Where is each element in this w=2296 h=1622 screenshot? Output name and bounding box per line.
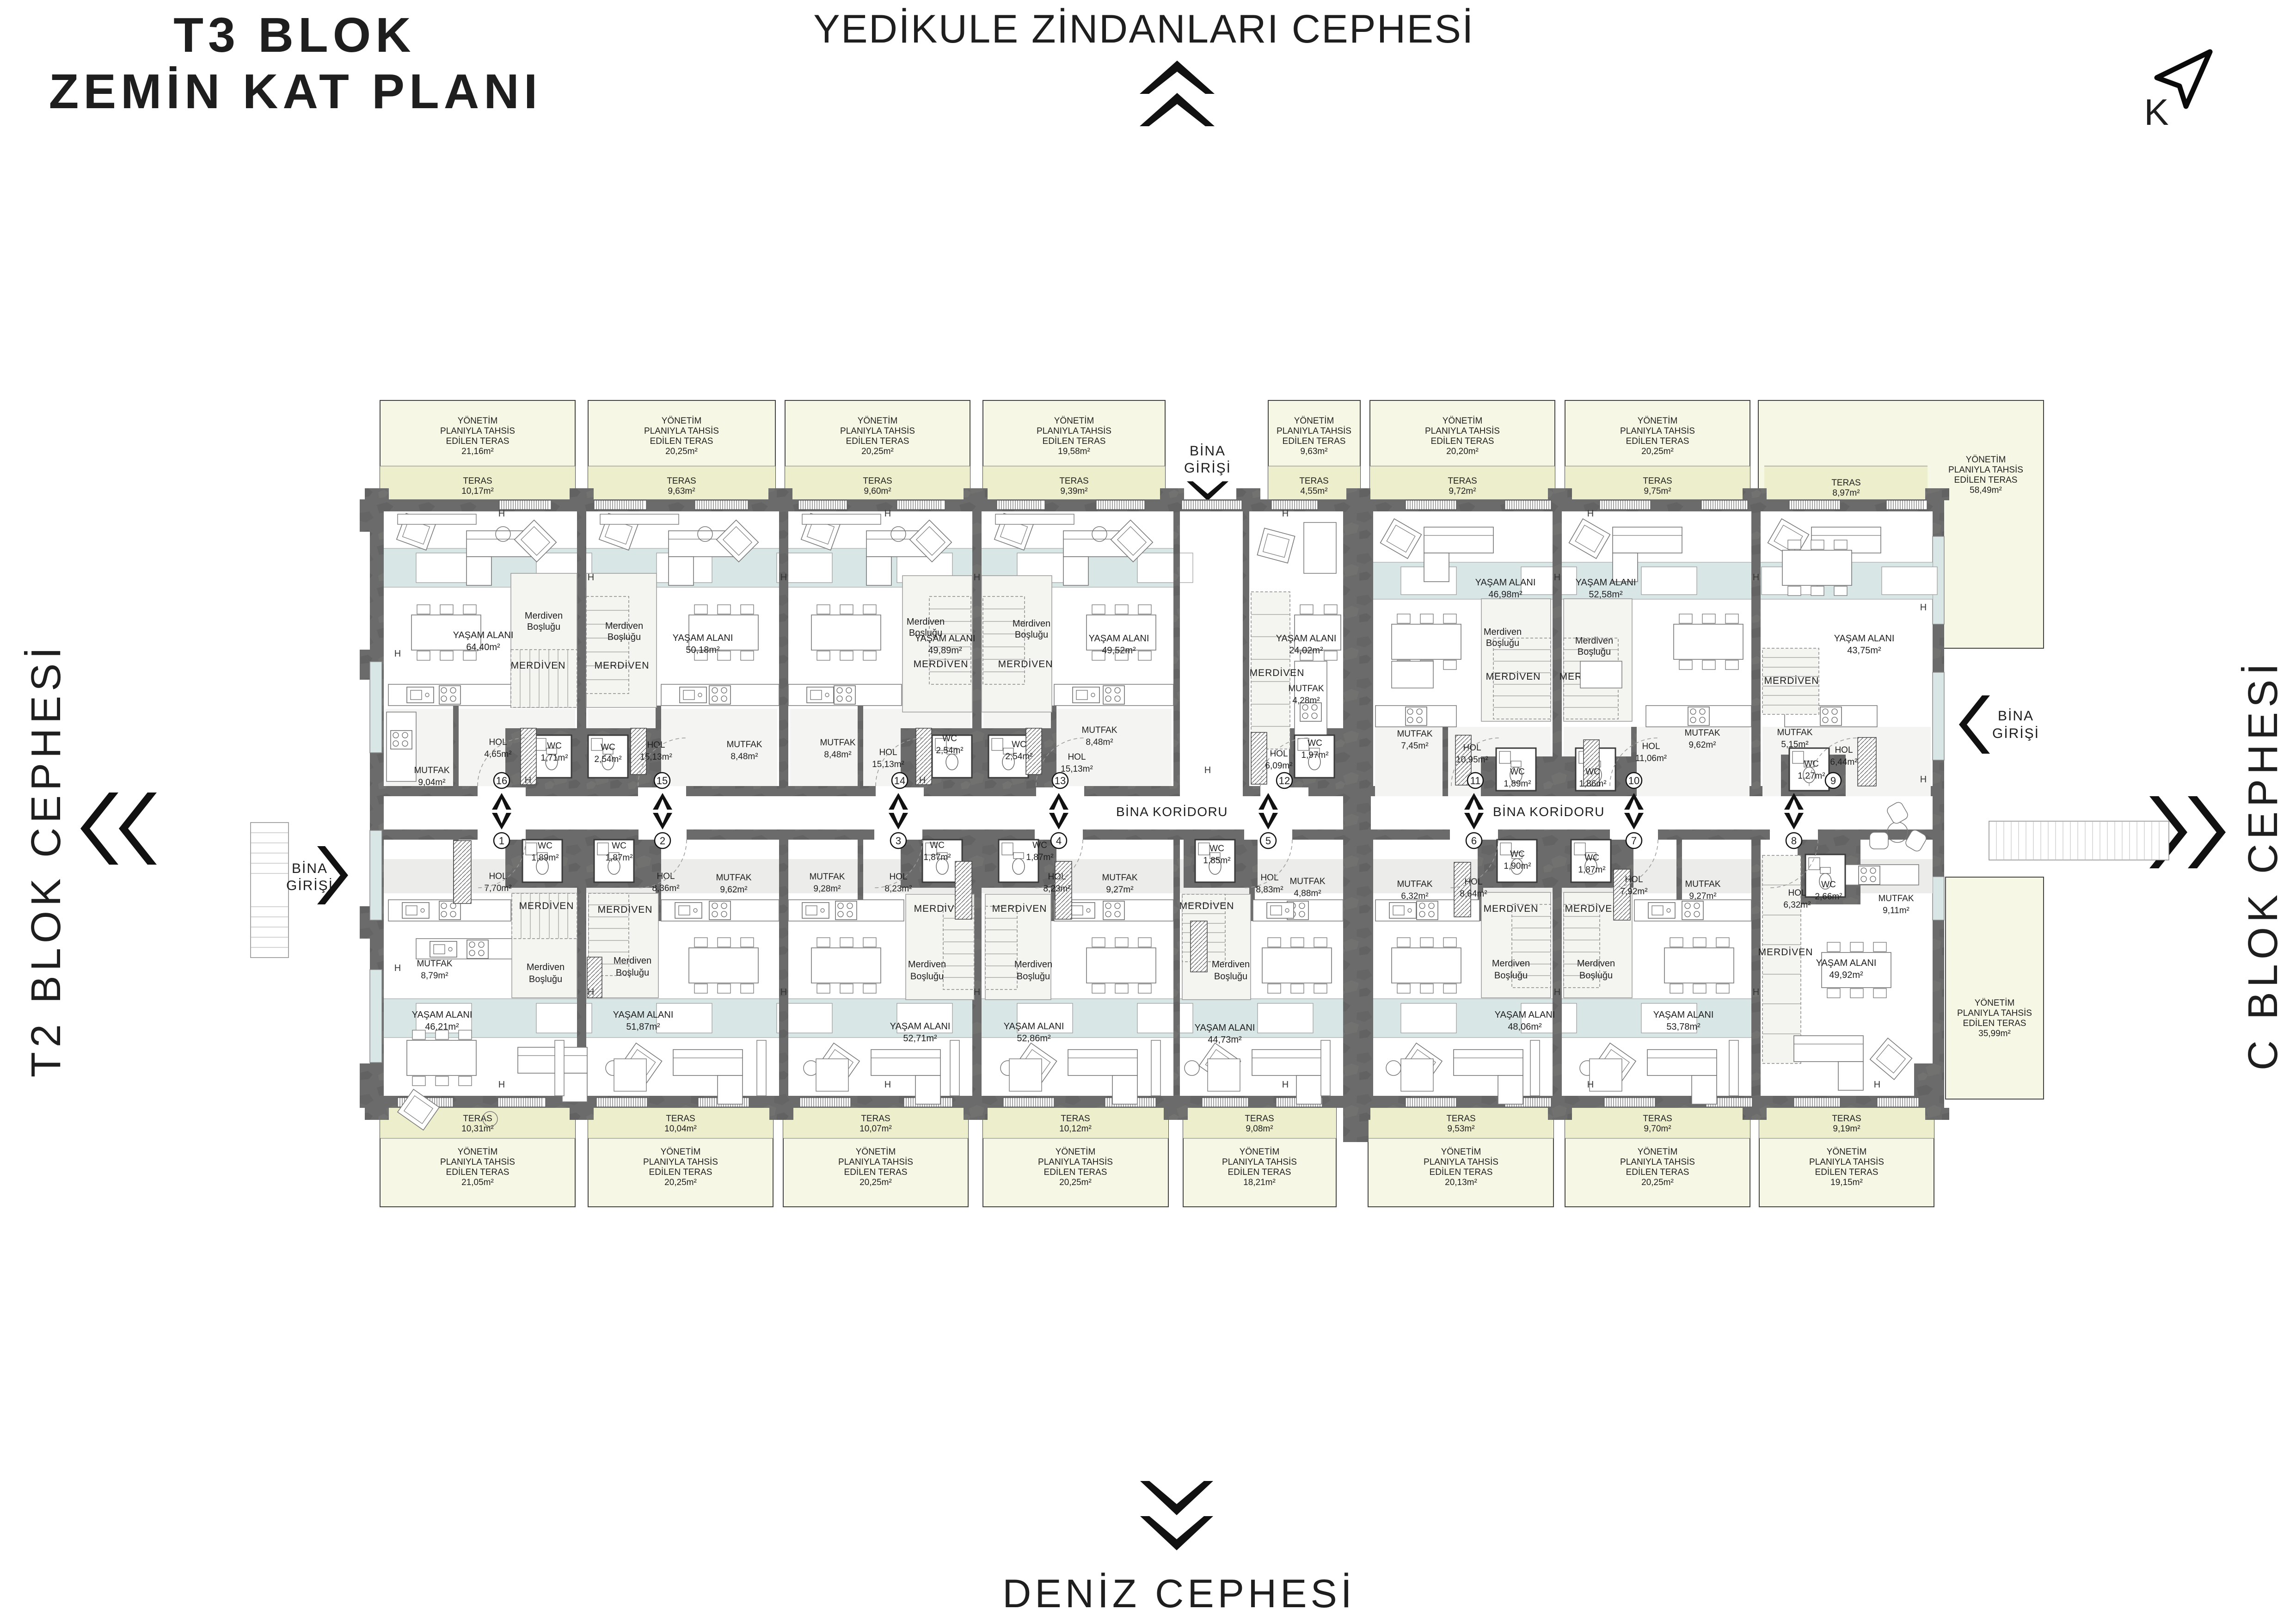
- svg-text:GİRİŞİ: GİRİŞİ: [286, 878, 333, 893]
- svg-text:H: H: [1204, 765, 1211, 775]
- svg-text:19,15m²: 19,15m²: [1830, 1178, 1863, 1187]
- svg-text:Boşluğu: Boşluğu: [1494, 971, 1528, 981]
- svg-text:Merdiven: Merdiven: [1013, 619, 1050, 629]
- svg-text:YAŞAM ALANI: YAŞAM ALANI: [1653, 1010, 1714, 1020]
- svg-text:5,15m²: 5,15m²: [1781, 740, 1808, 750]
- svg-text:HOL: HOL: [1048, 872, 1066, 882]
- svg-text:Merdiven: Merdiven: [527, 962, 565, 972]
- svg-text:4,65m²: 4,65m²: [484, 750, 511, 759]
- svg-text:PLANIYLA TAHSİS: PLANIYLA TAHSİS: [440, 426, 515, 436]
- svg-text:YAŞAM ALANI: YAŞAM ALANI: [890, 1021, 951, 1032]
- svg-text:TERAS: TERAS: [1061, 1114, 1090, 1124]
- svg-text:Merdiven: Merdiven: [1577, 958, 1615, 969]
- svg-text:WC: WC: [547, 741, 562, 751]
- svg-text:YAŞAM ALANI: YAŞAM ALANI: [453, 630, 514, 640]
- svg-text:19,58m²: 19,58m²: [1058, 447, 1090, 456]
- svg-text:YAŞAM ALANI: YAŞAM ALANI: [1576, 578, 1636, 588]
- svg-text:TERAS: TERAS: [1245, 1114, 1274, 1124]
- svg-text:24,02m²: 24,02m²: [1289, 645, 1323, 656]
- svg-text:GİRİŞİ: GİRİŞİ: [1992, 726, 2039, 741]
- svg-text:8,79m²: 8,79m²: [421, 971, 448, 981]
- svg-text:DENİZ CEPHESİ: DENİZ CEPHESİ: [1002, 1572, 1355, 1616]
- svg-text:8,36m²: 8,36m²: [652, 884, 679, 893]
- svg-text:YÖNETİM: YÖNETİM: [1443, 416, 1483, 426]
- svg-text:14: 14: [894, 775, 905, 786]
- svg-text:7: 7: [1631, 835, 1637, 847]
- svg-text:10,31m²: 10,31m²: [461, 1124, 494, 1134]
- svg-text:YÖNETİM: YÖNETİM: [1056, 1147, 1096, 1157]
- svg-text:H: H: [588, 987, 594, 997]
- svg-text:YAŞAM ALANI: YAŞAM ALANI: [673, 633, 733, 643]
- svg-text:YÖNETİM: YÖNETİM: [1827, 1147, 1867, 1157]
- svg-text:YÖNETİM: YÖNETİM: [662, 416, 702, 426]
- svg-text:TERAS: TERAS: [1446, 1114, 1475, 1124]
- svg-text:HOL: HOL: [1788, 888, 1806, 898]
- svg-text:6: 6: [1471, 835, 1477, 847]
- svg-text:Boşluğu: Boşluğu: [1214, 971, 1247, 982]
- svg-text:Boşluğu: Boşluğu: [529, 974, 562, 984]
- svg-text:C BLOK CEPHESİ: C BLOK CEPHESİ: [2240, 659, 2286, 1070]
- svg-text:HOL: HOL: [1260, 873, 1278, 883]
- svg-text:8,97m²: 8,97m²: [1832, 488, 1860, 498]
- svg-text:Merdiven: Merdiven: [605, 621, 643, 631]
- svg-text:YAŞAM ALANI: YAŞAM ALANI: [1834, 633, 1895, 644]
- svg-text:MUTFAK: MUTFAK: [414, 766, 449, 775]
- svg-text:TERAS: TERAS: [1831, 478, 1860, 488]
- svg-text:3: 3: [896, 835, 901, 847]
- svg-text:Merdiven: Merdiven: [1484, 627, 1522, 637]
- svg-text:9,70m²: 9,70m²: [1644, 1124, 1671, 1134]
- svg-text:15: 15: [657, 775, 668, 786]
- svg-text:1,97m²: 1,97m²: [1301, 750, 1328, 760]
- svg-text:20,20m²: 20,20m²: [1446, 447, 1479, 456]
- svg-text:58,49m²: 58,49m²: [1970, 485, 2002, 495]
- svg-text:YAŞAM ALANI: YAŞAM ALANI: [1089, 633, 1149, 644]
- svg-text:EDİLEN TERAS: EDİLEN TERAS: [1431, 436, 1494, 446]
- svg-text:WC: WC: [930, 841, 945, 850]
- svg-text:BİNA: BİNA: [292, 861, 328, 876]
- svg-text:WC: WC: [1012, 740, 1026, 750]
- svg-text:9,04m²: 9,04m²: [418, 778, 445, 787]
- svg-text:YAŞAM ALANI: YAŞAM ALANI: [412, 1010, 473, 1020]
- svg-text:46,98m²: 46,98m²: [1488, 590, 1522, 600]
- svg-text:Boşluğu: Boşluğu: [910, 971, 944, 982]
- svg-text:MUTFAK: MUTFAK: [1081, 725, 1117, 735]
- svg-text:4,55m²: 4,55m²: [1300, 486, 1327, 496]
- svg-text:YAŞAM ALANI: YAŞAM ALANI: [1495, 1010, 1555, 1020]
- svg-text:BİNA: BİNA: [1998, 708, 2034, 724]
- svg-text:21,16m²: 21,16m²: [461, 447, 494, 456]
- svg-text:MERDİVEN: MERDİVEN: [519, 901, 574, 911]
- svg-text:10,07m²: 10,07m²: [859, 1124, 892, 1134]
- svg-text:H: H: [1554, 572, 1560, 583]
- svg-text:6,32m²: 6,32m²: [1401, 891, 1428, 901]
- svg-text:53,78m²: 53,78m²: [1666, 1022, 1701, 1032]
- svg-text:7,45m²: 7,45m²: [1401, 741, 1428, 751]
- svg-text:PLANIYLA TAHSİS: PLANIYLA TAHSİS: [1222, 1157, 1297, 1167]
- svg-text:H: H: [780, 987, 787, 997]
- svg-text:10,17m²: 10,17m²: [461, 486, 494, 496]
- svg-text:9,75m²: 9,75m²: [1644, 486, 1671, 496]
- svg-text:9,60m²: 9,60m²: [864, 486, 891, 496]
- svg-text:H: H: [1753, 987, 1759, 997]
- svg-text:Merdiven: Merdiven: [1014, 959, 1052, 970]
- svg-text:EDİLEN TERAS: EDİLEN TERAS: [1954, 475, 2018, 485]
- svg-text:YAŞAM ALANI: YAŞAM ALANI: [1276, 633, 1337, 644]
- svg-text:EDİLEN TERAS: EDİLEN TERAS: [1044, 1167, 1107, 1177]
- svg-text:EDİLEN TERAS: EDİLEN TERAS: [446, 1167, 510, 1177]
- svg-text:MERDİVEN: MERDİVEN: [511, 660, 566, 671]
- svg-text:Merdiven: Merdiven: [525, 611, 563, 621]
- svg-text:YAŞAM ALANI: YAŞAM ALANI: [1475, 578, 1536, 588]
- svg-text:8,48m²: 8,48m²: [731, 752, 758, 762]
- svg-text:MERDİVEN: MERDİVEN: [1484, 903, 1539, 914]
- svg-text:H: H: [525, 775, 531, 786]
- svg-text:HOL: HOL: [1068, 752, 1086, 762]
- svg-text:9,11m²: 9,11m²: [1883, 906, 1909, 915]
- svg-text:PLANIYLA TAHSİS: PLANIYLA TAHSİS: [1620, 1157, 1695, 1167]
- svg-text:9,08m²: 9,08m²: [1246, 1124, 1273, 1134]
- svg-text:MERDİVEN: MERDİVEN: [1250, 668, 1305, 678]
- svg-text:20,25m²: 20,25m²: [664, 1178, 697, 1187]
- svg-text:YÖNETİM: YÖNETİM: [1638, 416, 1678, 426]
- svg-text:YAŞAM ALANI: YAŞAM ALANI: [1195, 1023, 1255, 1033]
- svg-text:4: 4: [1056, 835, 1062, 847]
- svg-text:TERAS: TERAS: [463, 1114, 492, 1124]
- svg-text:WC: WC: [1510, 849, 1525, 859]
- svg-text:35,99m²: 35,99m²: [1978, 1029, 2011, 1038]
- svg-text:YÖNETİM: YÖNETİM: [1240, 1147, 1280, 1157]
- svg-text:TERAS: TERAS: [863, 476, 892, 486]
- svg-text:BİNA KORİDORU: BİNA KORİDORU: [1116, 805, 1228, 819]
- svg-text:9,39m²: 9,39m²: [1060, 486, 1087, 496]
- svg-text:9,19m²: 9,19m²: [1833, 1124, 1860, 1134]
- svg-text:8,48m²: 8,48m²: [1086, 737, 1113, 747]
- svg-text:10,04m²: 10,04m²: [664, 1124, 697, 1134]
- svg-text:EDİLEN TERAS: EDİLEN TERAS: [1430, 1167, 1493, 1177]
- svg-text:1,71m²: 1,71m²: [540, 753, 568, 763]
- svg-text:49,52m²: 49,52m²: [1102, 645, 1136, 656]
- svg-text:7,92m²: 7,92m²: [1620, 887, 1647, 897]
- svg-text:YAŞAM ALANI: YAŞAM ALANI: [915, 633, 976, 644]
- svg-text:2,66m²: 2,66m²: [1815, 892, 1842, 902]
- svg-text:WC: WC: [1585, 767, 1600, 777]
- svg-text:TERAS: TERAS: [1299, 476, 1328, 486]
- svg-text:HOL: HOL: [1464, 877, 1482, 887]
- svg-text:9,63m²: 9,63m²: [1300, 447, 1327, 456]
- svg-text:52,86m²: 52,86m²: [1017, 1033, 1051, 1044]
- svg-text:MUTFAK: MUTFAK: [820, 738, 855, 748]
- svg-text:48,06m²: 48,06m²: [1508, 1022, 1542, 1032]
- svg-text:49,92m²: 49,92m²: [1829, 970, 1863, 980]
- svg-text:MERDİVEN: MERDİVEN: [1179, 901, 1234, 911]
- svg-text:8,48m²: 8,48m²: [824, 750, 851, 760]
- svg-text:9,27m²: 9,27m²: [1689, 891, 1716, 901]
- svg-text:9,62m²: 9,62m²: [720, 885, 747, 895]
- svg-text:H: H: [498, 1080, 505, 1090]
- svg-text:Boşluğu: Boşluğu: [608, 632, 641, 642]
- svg-text:8,23m²: 8,23m²: [1043, 884, 1070, 894]
- svg-text:6,44m²: 6,44m²: [1830, 757, 1857, 767]
- svg-text:MERDİVEN: MERDİVEN: [1758, 947, 1813, 958]
- svg-text:8,64m²: 8,64m²: [1460, 889, 1487, 899]
- svg-text:PLANIYLA TAHSİS: PLANIYLA TAHSİS: [440, 1157, 515, 1167]
- svg-text:52,58m²: 52,58m²: [1589, 590, 1623, 600]
- svg-text:20,25m²: 20,25m²: [861, 447, 894, 456]
- svg-text:PLANIYLA TAHSİS: PLANIYLA TAHSİS: [643, 1157, 718, 1167]
- svg-text:TERAS: TERAS: [1643, 1114, 1672, 1124]
- svg-text:4,88m²: 4,88m²: [1294, 889, 1321, 898]
- svg-text:H: H: [1874, 1080, 1880, 1090]
- svg-text:51,87m²: 51,87m²: [626, 1022, 660, 1032]
- svg-text:YÖNETİM: YÖNETİM: [1294, 416, 1334, 426]
- svg-text:MERDİVEN: MERDİVEN: [1764, 676, 1819, 686]
- svg-text:MUTFAK: MUTFAK: [417, 959, 452, 969]
- svg-text:9: 9: [1830, 775, 1836, 786]
- svg-text:ZEMİN KAT PLANI: ZEMİN KAT PLANI: [49, 64, 542, 119]
- svg-text:HOL: HOL: [657, 872, 675, 881]
- svg-text:EDİLEN TERAS: EDİLEN TERAS: [846, 436, 909, 446]
- svg-text:PLANIYLA TAHSİS: PLANIYLA TAHSİS: [1620, 426, 1695, 436]
- svg-text:YÖNETİM: YÖNETİM: [1638, 1147, 1678, 1157]
- svg-text:16: 16: [496, 775, 507, 786]
- svg-text:EDİLEN TERAS: EDİLEN TERAS: [446, 436, 510, 446]
- svg-text:WC: WC: [612, 841, 626, 851]
- svg-text:EDİLEN TERAS: EDİLEN TERAS: [1283, 436, 1346, 446]
- svg-text:Merdiven: Merdiven: [1575, 636, 1613, 646]
- svg-text:2,54m²: 2,54m²: [594, 755, 621, 764]
- svg-text:H: H: [974, 572, 980, 583]
- svg-text:PLANIYLA TAHSİS: PLANIYLA TAHSİS: [1037, 426, 1111, 436]
- svg-text:WC: WC: [601, 743, 615, 752]
- svg-text:MUTFAK: MUTFAK: [1102, 873, 1137, 883]
- svg-text:PLANIYLA TAHSİS: PLANIYLA TAHSİS: [1038, 1157, 1113, 1167]
- svg-text:T2 BLOK CEPHESİ: T2 BLOK CEPHESİ: [23, 643, 69, 1077]
- svg-text:YEDİKULE ZİNDANLARI CEPHESİ: YEDİKULE ZİNDANLARI CEPHESİ: [813, 7, 1474, 51]
- svg-text:WC: WC: [1821, 880, 1836, 890]
- svg-text:MERDİVEN: MERDİVEN: [992, 903, 1047, 914]
- svg-text:1,89m²: 1,89m²: [531, 853, 559, 863]
- svg-text:Merdiven: Merdiven: [1212, 959, 1250, 970]
- svg-text:H: H: [1554, 987, 1560, 997]
- svg-text:YAŞAM ALANI: YAŞAM ALANI: [1004, 1021, 1064, 1032]
- svg-text:Merdiven: Merdiven: [908, 959, 946, 970]
- svg-text:20,25m²: 20,25m²: [1059, 1178, 1092, 1187]
- svg-text:EDİLEN TERAS: EDİLEN TERAS: [844, 1167, 908, 1177]
- svg-text:TERAS: TERAS: [861, 1114, 890, 1124]
- svg-text:HOL: HOL: [1625, 875, 1643, 885]
- svg-text:MUTFAK: MUTFAK: [1878, 894, 1914, 903]
- svg-text:WC: WC: [1510, 767, 1525, 777]
- svg-text:YÖNETİM: YÖNETİM: [458, 416, 498, 426]
- svg-text:MUTFAK: MUTFAK: [1289, 877, 1325, 886]
- svg-text:8: 8: [1791, 835, 1797, 847]
- svg-text:YÖNETİM: YÖNETİM: [458, 1147, 498, 1157]
- svg-text:PLANIYLA TAHSİS: PLANIYLA TAHSİS: [838, 1157, 913, 1167]
- svg-text:15,13m²: 15,13m²: [872, 760, 904, 769]
- svg-text:EDİLEN TERAS: EDİLEN TERAS: [650, 436, 713, 446]
- svg-text:HOL: HOL: [1463, 743, 1481, 753]
- svg-text:EDİLEN TERAS: EDİLEN TERAS: [1043, 436, 1106, 446]
- svg-text:Boşluğu: Boşluğu: [1579, 971, 1613, 981]
- svg-text:PLANIYLA TAHSİS: PLANIYLA TAHSİS: [1425, 426, 1500, 436]
- svg-text:11,06m²: 11,06m²: [1635, 754, 1667, 763]
- svg-text:H: H: [1920, 602, 1927, 613]
- svg-text:46,21m²: 46,21m²: [425, 1022, 459, 1032]
- svg-text:5: 5: [1265, 835, 1271, 847]
- svg-text:HOL: HOL: [1835, 745, 1853, 755]
- svg-text:MERDİVEN: MERDİVEN: [1565, 903, 1620, 914]
- svg-text:Merdiven: Merdiven: [907, 617, 945, 627]
- svg-text:PLANIYLA TAHSİS: PLANIYLA TAHSİS: [1809, 1157, 1884, 1167]
- svg-text:TERAS: TERAS: [1059, 476, 1088, 486]
- svg-text:WC: WC: [942, 734, 957, 743]
- svg-text:H: H: [884, 509, 891, 519]
- svg-text:6,32m²: 6,32m²: [1783, 900, 1811, 910]
- svg-text:TERAS: TERAS: [667, 476, 696, 486]
- svg-text:H: H: [884, 1080, 891, 1090]
- svg-text:1,90m²: 1,90m²: [1504, 861, 1531, 871]
- svg-text:H: H: [919, 775, 926, 786]
- svg-text:PLANIYLA TAHSİS: PLANIYLA TAHSİS: [840, 426, 915, 436]
- svg-text:MERDİVEN: MERDİVEN: [1486, 671, 1541, 682]
- svg-text:Boşluğu: Boşluğu: [1578, 647, 1611, 657]
- svg-text:1,85m²: 1,85m²: [1203, 856, 1230, 866]
- svg-text:50,18m²: 50,18m²: [686, 645, 720, 655]
- svg-text:20,25m²: 20,25m²: [1641, 447, 1674, 456]
- svg-text:MUTFAK: MUTFAK: [1397, 729, 1432, 739]
- svg-text:PLANIYLA TAHSİS: PLANIYLA TAHSİS: [644, 426, 719, 436]
- svg-text:MUTFAK: MUTFAK: [716, 873, 751, 883]
- svg-text:MUTFAK: MUTFAK: [809, 872, 845, 882]
- svg-text:YÖNETİM: YÖNETİM: [661, 1147, 701, 1157]
- svg-text:20,25m²: 20,25m²: [1641, 1178, 1674, 1187]
- svg-text:PLANIYLA TAHSİS: PLANIYLA TAHSİS: [1948, 465, 2023, 475]
- svg-text:WC: WC: [1584, 853, 1599, 863]
- svg-text:MERDİVEN: MERDİVEN: [598, 904, 653, 915]
- svg-text:9,27m²: 9,27m²: [1106, 885, 1133, 895]
- svg-text:EDİLEN TERAS: EDİLEN TERAS: [649, 1167, 712, 1177]
- svg-text:7,70m²: 7,70m²: [484, 884, 511, 893]
- svg-text:Boşluğu: Boşluğu: [1015, 630, 1048, 640]
- svg-text:EDİLEN TERAS: EDİLEN TERAS: [1228, 1167, 1291, 1177]
- svg-text:9,28m²: 9,28m²: [813, 884, 841, 894]
- svg-text:10,12m²: 10,12m²: [1059, 1124, 1092, 1134]
- svg-text:MUTFAK: MUTFAK: [726, 740, 762, 750]
- svg-text:1,89m²: 1,89m²: [1504, 779, 1531, 789]
- svg-text:11: 11: [1470, 775, 1481, 786]
- svg-text:21,05m²: 21,05m²: [461, 1178, 494, 1187]
- svg-text:1,87m²: 1,87m²: [605, 853, 632, 863]
- svg-text:64,40m²: 64,40m²: [466, 642, 500, 652]
- svg-text:18,21m²: 18,21m²: [1243, 1178, 1276, 1187]
- svg-text:9,72m²: 9,72m²: [1449, 486, 1476, 496]
- svg-text:1,27m²: 1,27m²: [1798, 771, 1825, 781]
- svg-text:MUTFAK: MUTFAK: [1288, 684, 1324, 694]
- svg-text:WC: WC: [538, 841, 553, 851]
- svg-text:TERAS: TERAS: [1832, 1114, 1861, 1124]
- svg-text:YÖNETİM: YÖNETİM: [856, 1147, 896, 1157]
- svg-text:MUTFAK: MUTFAK: [1685, 879, 1720, 889]
- svg-text:YÖNETİM: YÖNETİM: [1054, 416, 1094, 426]
- svg-text:15,13m²: 15,13m²: [640, 752, 672, 762]
- svg-text:6,09m²: 6,09m²: [1265, 761, 1292, 771]
- svg-text:2,54m²: 2,54m²: [1005, 752, 1032, 762]
- svg-text:4,28m²: 4,28m²: [1292, 696, 1320, 706]
- svg-text:HOL: HOL: [489, 737, 507, 747]
- svg-text:20,25m²: 20,25m²: [859, 1178, 892, 1187]
- svg-text:Boşluğu: Boşluğu: [1017, 971, 1050, 982]
- svg-text:MUTFAK: MUTFAK: [1777, 728, 1812, 737]
- svg-text:MUTFAK: MUTFAK: [1684, 728, 1720, 738]
- svg-text:1,87m²: 1,87m²: [1578, 865, 1605, 875]
- svg-text:10,95m²: 10,95m²: [1456, 755, 1488, 765]
- svg-text:H: H: [394, 649, 401, 659]
- svg-text:10: 10: [1628, 775, 1639, 786]
- svg-text:Merdiven: Merdiven: [614, 956, 651, 966]
- svg-text:YÖNETİM: YÖNETİM: [1966, 455, 2006, 465]
- svg-text:H: H: [1587, 509, 1594, 519]
- svg-text:BİNA KORİDORU: BİNA KORİDORU: [1493, 805, 1605, 819]
- svg-text:MERDİVEN: MERDİVEN: [595, 660, 650, 671]
- svg-text:WC: WC: [1308, 738, 1322, 748]
- svg-text:Merdiven: Merdiven: [1492, 958, 1530, 969]
- svg-text:TERAS: TERAS: [666, 1114, 695, 1124]
- svg-text:H: H: [498, 509, 505, 519]
- svg-text:BİNA: BİNA: [1190, 443, 1226, 459]
- svg-text:1,87m²: 1,87m²: [923, 853, 951, 862]
- svg-text:Boşluğu: Boşluğu: [527, 622, 560, 632]
- svg-text:1: 1: [499, 835, 504, 847]
- svg-text:EDİLEN TERAS: EDİLEN TERAS: [1626, 1167, 1689, 1177]
- svg-text:20,13m²: 20,13m²: [1445, 1178, 1477, 1187]
- svg-text:H: H: [1282, 509, 1289, 519]
- svg-text:EDİLEN TERAS: EDİLEN TERAS: [1626, 436, 1689, 446]
- svg-text:13: 13: [1055, 775, 1066, 786]
- svg-text:TERAS: TERAS: [463, 476, 492, 486]
- svg-text:43,75m²: 43,75m²: [1847, 645, 1881, 656]
- svg-text:9,62m²: 9,62m²: [1688, 740, 1716, 750]
- svg-text:H: H: [1587, 1080, 1594, 1090]
- svg-text:44,73m²: 44,73m²: [1208, 1035, 1242, 1045]
- svg-text:20,25m²: 20,25m²: [665, 447, 698, 456]
- svg-text:Boşluğu: Boşluğu: [616, 968, 649, 978]
- svg-text:9,63m²: 9,63m²: [668, 486, 695, 496]
- svg-text:H: H: [1920, 774, 1927, 785]
- svg-text:TERAS: TERAS: [1448, 476, 1477, 486]
- svg-text:H: H: [974, 987, 980, 997]
- svg-text:H: H: [780, 572, 787, 583]
- svg-text:49,89m²: 49,89m²: [928, 645, 962, 656]
- svg-text:MERDİVEN: MERDİVEN: [998, 659, 1053, 670]
- svg-text:YAŞAM ALANI: YAŞAM ALANI: [613, 1010, 674, 1020]
- svg-text:PLANIYLA TAHSİS: PLANIYLA TAHSİS: [1277, 426, 1351, 436]
- svg-text:MERDİVEN: MERDİVEN: [914, 659, 969, 670]
- svg-text:MUTFAK: MUTFAK: [1397, 879, 1432, 889]
- svg-text:YAŞAM ALANI: YAŞAM ALANI: [1816, 958, 1877, 968]
- svg-text:WC: WC: [1032, 841, 1047, 850]
- svg-text:HOL: HOL: [647, 740, 665, 750]
- svg-text:K: K: [2144, 92, 2168, 133]
- svg-text:Boşluğu: Boşluğu: [1486, 638, 1519, 648]
- svg-text:9,53m²: 9,53m²: [1447, 1124, 1474, 1134]
- svg-text:YÖNETİM: YÖNETİM: [1975, 998, 2015, 1008]
- svg-text:H: H: [394, 963, 401, 973]
- svg-text:H: H: [588, 572, 594, 583]
- svg-text:GİRİŞİ: GİRİŞİ: [1184, 461, 1231, 476]
- svg-text:12: 12: [1279, 775, 1290, 786]
- svg-text:EDİLEN TERAS: EDİLEN TERAS: [1963, 1019, 2026, 1028]
